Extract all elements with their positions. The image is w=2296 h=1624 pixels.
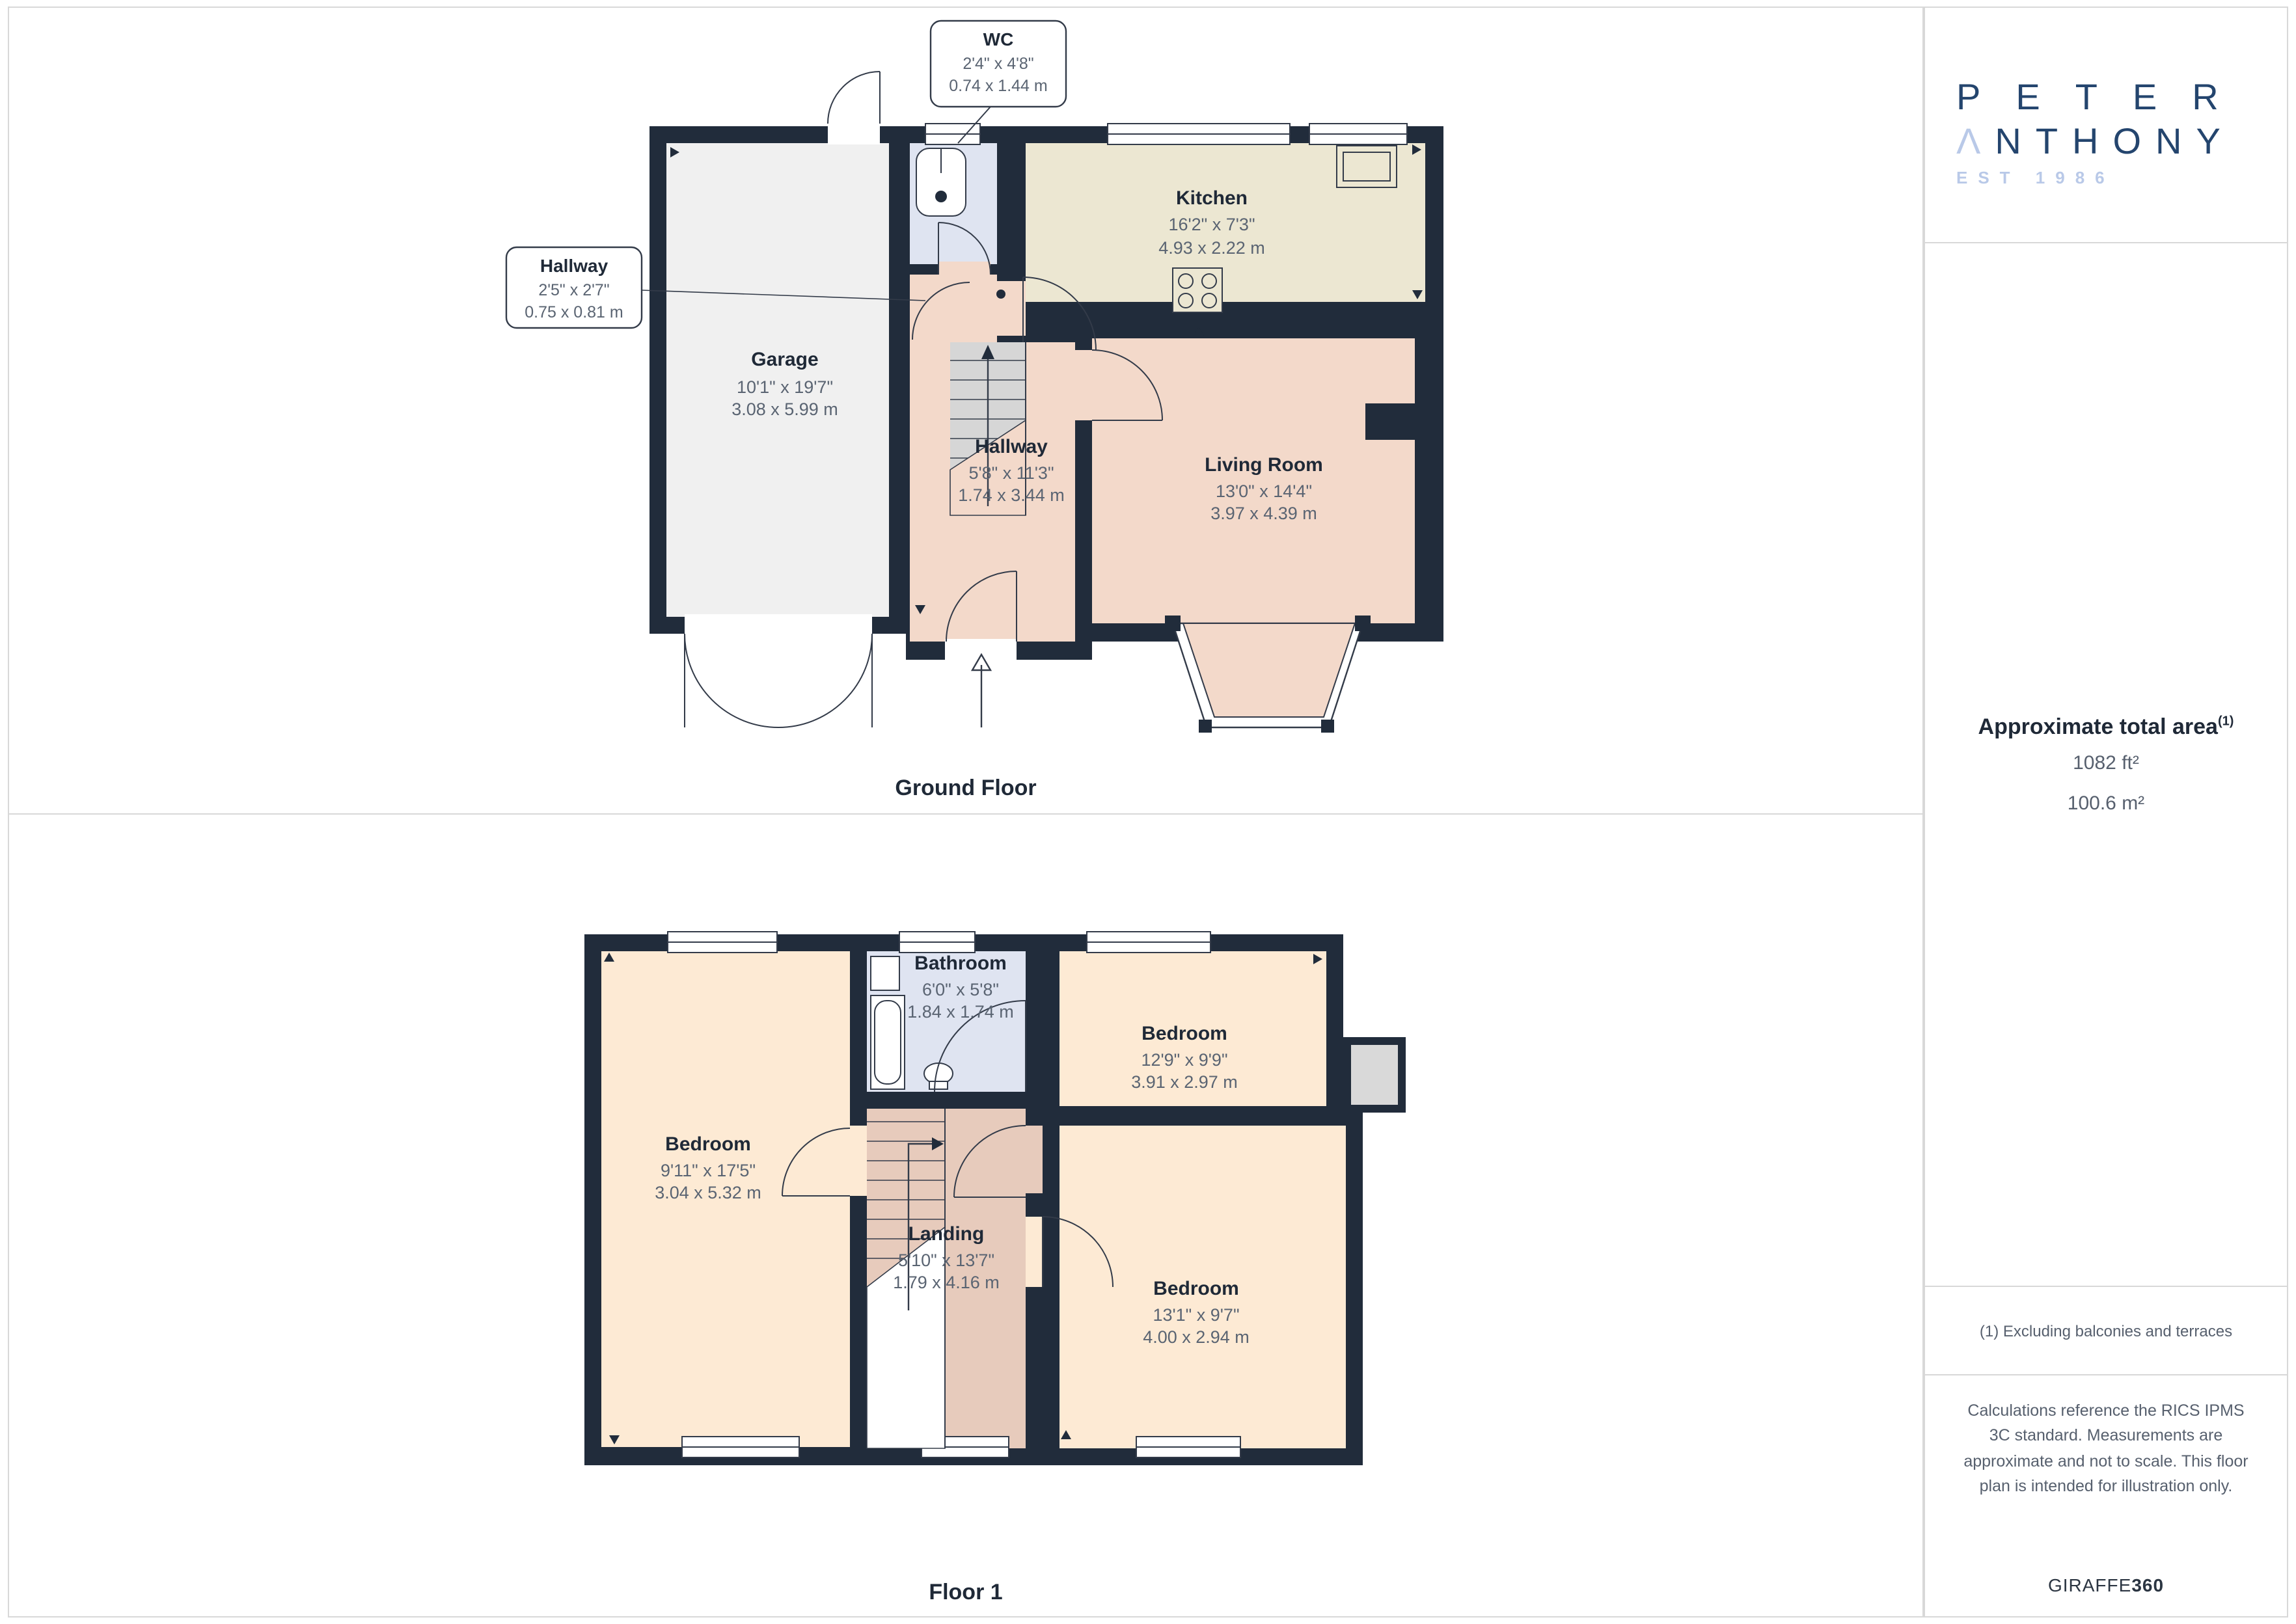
bath-icon: [871, 995, 905, 1089]
small-hallway-dim-metric: 0.75 x 0.81 m: [525, 303, 623, 321]
total-area-title-text: Approximate total area: [1978, 714, 2218, 739]
total-area-metric: 100.6 m²: [2068, 793, 2144, 815]
logo-line2: ΛNTHONY: [1956, 119, 2287, 163]
garage-label: Garage: [751, 349, 818, 370]
living-room-dim-imperial: 13'0" x 14'4": [1216, 481, 1312, 501]
floor1-panel: Bedroom 9'11" x 17'5" 3.04 x 5.32 m Bath…: [9, 815, 1922, 1619]
hob-icon: [1173, 268, 1222, 312]
ground-floor-caption: Ground Floor: [9, 776, 1922, 802]
total-area-imperial: 1082 ft²: [2073, 753, 2139, 775]
hallway-label: Hallway: [975, 436, 1048, 457]
total-area-section: Approximate total area(1) 1082 ft² 100.6…: [1925, 243, 2287, 1287]
landing-label: Landing: [909, 1223, 985, 1245]
hallway-dim-metric: 1.74 x 3.44 m: [958, 485, 1065, 505]
bedroom-bottom-dim-imperial: 13'1" x 9'7": [1153, 1305, 1239, 1325]
agency-logo: PETER ΛNTHONY EST 1986: [1925, 8, 2287, 243]
bedroom-top-dim-imperial: 12'9" x 9'9": [1141, 1050, 1227, 1070]
entrance-arrow: [972, 655, 991, 727]
wc-dim-metric: 0.74 x 1.44 m: [949, 77, 1047, 95]
wc-sink-icon: [916, 148, 966, 216]
wc-door-opening: [938, 262, 991, 277]
bedroom-left-dim-imperial: 9'11" x 17'5": [661, 1161, 756, 1180]
footnote-section: (1) Excluding balconies and terraces: [1925, 1287, 2287, 1375]
kitchen-dim-metric: 4.93 x 2.22 m: [1158, 238, 1265, 258]
plan-area: WC 2'4" x 4'8" 0.74 x 1.44 m Hallway 2'5…: [8, 7, 1924, 1617]
bedroom-left-dim-metric: 3.04 x 5.32 m: [655, 1183, 761, 1202]
garage-side-door-arc: [828, 72, 880, 124]
closet: [1351, 1045, 1398, 1105]
bedroom-bottom-dim-metric: 4.00 x 2.94 m: [1143, 1327, 1250, 1347]
kitchen-label: Kitchen: [1176, 187, 1248, 209]
living-room-dim-metric: 3.97 x 4.39 m: [1210, 504, 1317, 523]
kitchen-dim-imperial: 16'2" x 7'3": [1168, 215, 1255, 234]
landing-dim-imperial: 5'10" x 13'7": [898, 1251, 994, 1270]
door-pivot-dot: [996, 290, 1005, 299]
garage-side-door-opening: [828, 124, 880, 144]
logo-line2-rest: NTHONY: [1995, 120, 2234, 161]
floor1-plan: Bedroom 9'11" x 17'5" 3.04 x 5.32 m Bath…: [548, 920, 1459, 1493]
footnote-text: (1) Excluding balconies and terraces: [1980, 1321, 2232, 1340]
bedroom-top-label: Bedroom: [1141, 1023, 1227, 1044]
bedroom-top-door-opening: [1026, 1126, 1043, 1193]
floor1-caption: Floor 1: [9, 1580, 1922, 1606]
giraffe360-logo: GIRAFFE360: [2048, 1575, 2164, 1595]
sidebar: PETER ΛNTHONY EST 1986 Approximate total…: [1924, 7, 2288, 1617]
garage-dim-imperial: 10'1" x 19'7": [737, 377, 833, 397]
garage-door-opening: [685, 614, 872, 636]
small-hallway-opening: [997, 281, 1026, 336]
brand-name: GIRAFFE: [2048, 1575, 2131, 1595]
living-room: [1092, 338, 1415, 623]
wc-dim-imperial: 2'4" x 4'8": [963, 55, 1033, 73]
ground-floor-plan: WC 2'4" x 4'8" 0.74 x 1.44 m Hallway 2'5…: [496, 14, 1485, 795]
landing-dim-metric: 1.79 x 4.16 m: [893, 1273, 1000, 1292]
bedroom-left-label: Bedroom: [665, 1133, 751, 1155]
garage-doors: [685, 634, 872, 727]
total-area-title: Approximate total area(1): [1978, 714, 2234, 740]
logo-line1: PETER: [1956, 75, 2287, 119]
bathroom-dim-metric: 1.84 x 1.74 m: [907, 1002, 1014, 1022]
footnote-marker: (1): [2218, 715, 2234, 729]
bathroom-label: Bathroom: [914, 953, 1007, 974]
living-room-label: Living Room: [1205, 454, 1323, 476]
brand-suffix: 360: [2131, 1575, 2164, 1595]
page-frame: WC 2'4" x 4'8" 0.74 x 1.44 m Hallway 2'5…: [8, 7, 2288, 1617]
bedroom-top-dim-metric: 3.91 x 2.97 m: [1131, 1072, 1238, 1092]
bedroom-bottom-label: Bedroom: [1153, 1278, 1239, 1299]
living-door-opening: [1075, 350, 1092, 420]
front-door-opening: [945, 639, 1017, 662]
chimney-breast: [1365, 403, 1415, 440]
disclaimer-section: Calculations reference the RICS IPMS 3C …: [1925, 1375, 2287, 1616]
wc-label: WC: [983, 29, 1014, 49]
bathroom-dim-imperial: 6'0" x 5'8": [922, 980, 999, 999]
small-hallway-label: Hallway: [540, 256, 608, 276]
bay-window: [1165, 616, 1371, 733]
bedroom-left-door-opening: [850, 1126, 867, 1196]
floorplan-page: WC 2'4" x 4'8" 0.74 x 1.44 m Hallway 2'5…: [0, 0, 2296, 1624]
ground-floor-panel: WC 2'4" x 4'8" 0.74 x 1.44 m Hallway 2'5…: [9, 8, 1922, 815]
hallway-dim-imperial: 5'8" x 11'3": [968, 463, 1054, 483]
small-hallway-dim-imperial: 2'5" x 2'7": [538, 281, 609, 299]
bathroom-sink-icon: [871, 956, 899, 990]
garage-dim-metric: 3.08 x 5.99 m: [731, 399, 838, 419]
logo-est: EST 1986: [1956, 168, 2287, 187]
logo-a-glyph: Λ: [1956, 120, 1995, 161]
bedroom-bottom-door-opening: [1026, 1217, 1043, 1287]
disclaimer-text: Calculations reference the RICS IPMS 3C …: [1956, 1399, 2256, 1500]
